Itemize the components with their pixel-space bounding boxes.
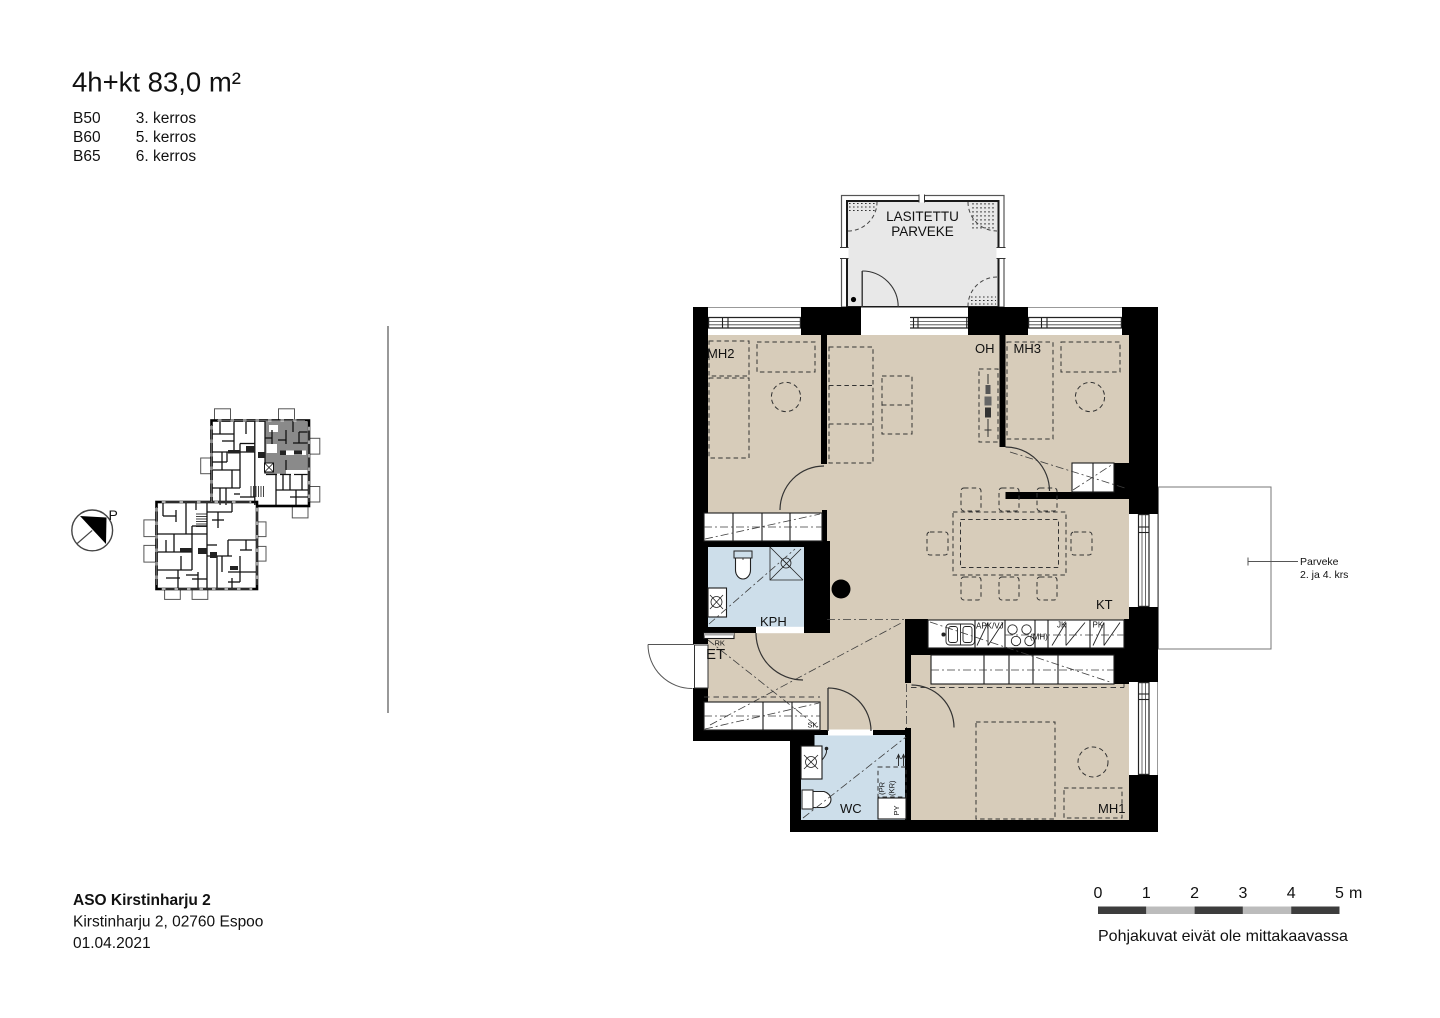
svg-text:KT: KT [1096, 597, 1113, 612]
svg-text:MH2: MH2 [707, 346, 734, 361]
svg-text:SK: SK [808, 721, 818, 730]
svg-text:4h+kt 83,0 m²: 4h+kt 83,0 m² [72, 67, 241, 98]
svg-text:RK: RK [715, 639, 725, 648]
svg-text:KPH: KPH [760, 614, 787, 629]
svg-text:0: 0 [1094, 885, 1103, 902]
svg-text:OH: OH [975, 341, 995, 356]
svg-text:B50: B50 [73, 110, 101, 127]
svg-text:(KR): (KR) [887, 780, 897, 796]
svg-text:P: P [109, 507, 118, 523]
svg-text:ET: ET [706, 646, 725, 663]
svg-text:3: 3 [1238, 885, 1247, 902]
svg-text:WC: WC [840, 801, 862, 816]
svg-text:Pohjakuvat eivät ole mittakaav: Pohjakuvat eivät ole mittakaavassa [1098, 928, 1348, 945]
svg-text:4: 4 [1287, 885, 1296, 902]
svg-text:Kirstinharju 2, 02760 Espoo: Kirstinharju 2, 02760 Espoo [73, 914, 263, 931]
svg-text:PY: PY [892, 805, 901, 815]
svg-text:APK/VJ: APK/VJ [976, 622, 1004, 631]
svg-text:1: 1 [1142, 885, 1151, 902]
svg-text:01.04.2021: 01.04.2021 [73, 935, 151, 952]
svg-text:6. kerros: 6. kerros [136, 148, 197, 165]
svg-text:MH3: MH3 [1014, 341, 1041, 356]
svg-text:JK: JK [1057, 621, 1067, 630]
svg-text:(MH): (MH) [1030, 633, 1048, 642]
svg-text:PK: PK [1093, 621, 1104, 630]
svg-text:B65: B65 [73, 148, 101, 165]
svg-text:MH1: MH1 [1098, 801, 1125, 816]
svg-text:m: m [1349, 885, 1362, 902]
svg-text:5. kerros: 5. kerros [136, 129, 197, 146]
svg-text:3. kerros: 3. kerros [136, 110, 197, 127]
svg-text:2: 2 [1190, 885, 1199, 902]
svg-text:(PR: (PR [877, 781, 887, 795]
svg-text:LASITETTU: LASITETTU [886, 209, 959, 224]
svg-text:PARVEKE: PARVEKE [891, 224, 954, 239]
svg-text:ASO Kirstinharju 2: ASO Kirstinharju 2 [73, 892, 211, 909]
svg-text:5: 5 [1335, 885, 1344, 902]
svg-text:Parveke: Parveke [1300, 556, 1339, 568]
svg-text:2. ja 4. krs: 2. ja 4. krs [1300, 569, 1348, 581]
svg-text:B60: B60 [73, 129, 101, 146]
